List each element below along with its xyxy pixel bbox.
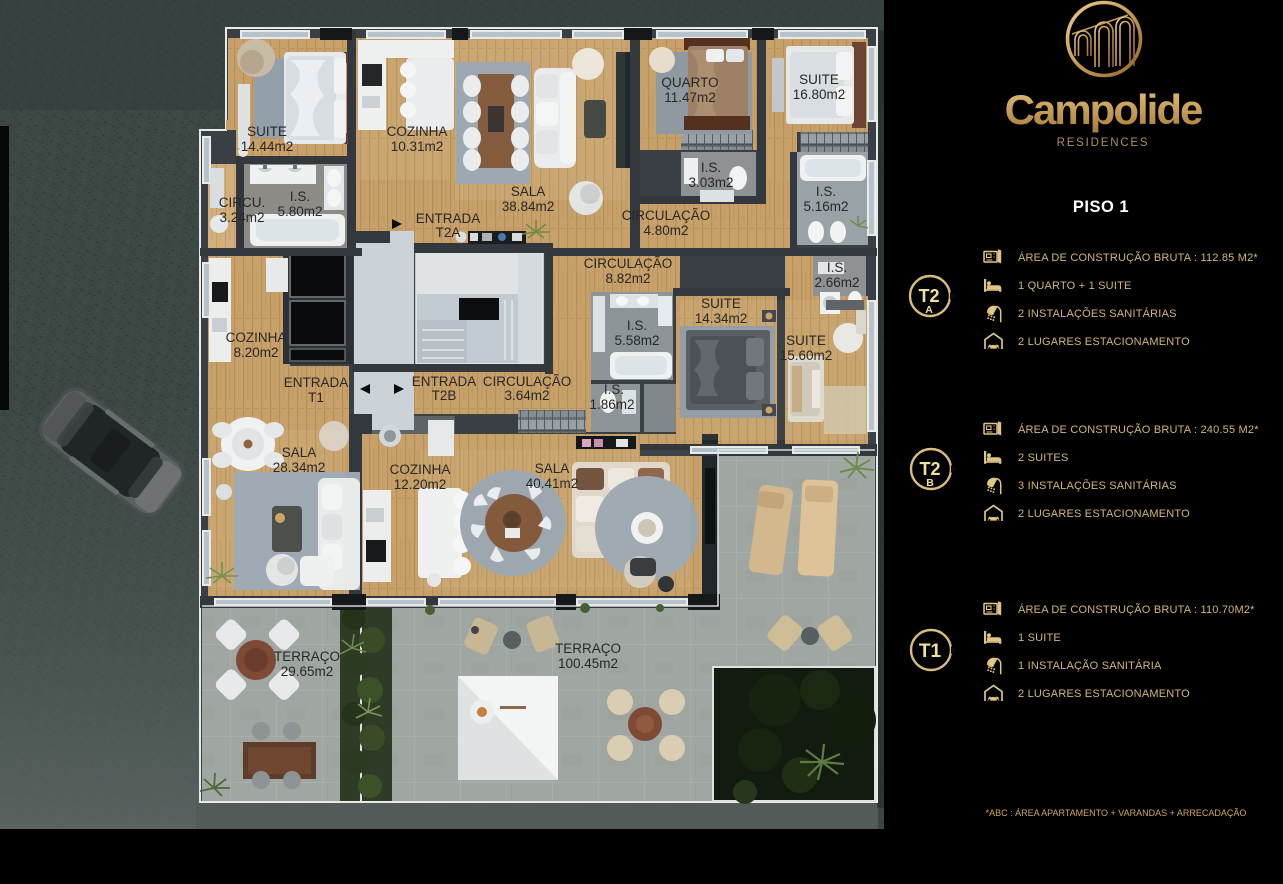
svg-text:8.20m2: 8.20m2 — [233, 345, 278, 360]
svg-text:T1: T1 — [308, 390, 324, 405]
svg-text:100.45m2: 100.45m2 — [558, 656, 618, 671]
svg-text:1 SUITE: 1 SUITE — [1018, 632, 1061, 644]
svg-text:T1: T1 — [919, 641, 942, 662]
svg-text:T2: T2 — [918, 286, 939, 306]
svg-text:ÁREA DE CONSTRUÇÃO BRUTA : 24: ÁREA DE CONSTRUÇÃO BRUTA : 240.55 M2* — [1018, 423, 1259, 436]
svg-text:CIRCU.: CIRCU. — [219, 195, 266, 210]
svg-text:TERRAÇO: TERRAÇO — [555, 641, 621, 656]
svg-text:11.47m2: 11.47m2 — [664, 90, 716, 105]
svg-text:2 LUGARES ESTACIONAMENTO: 2 LUGARES ESTACIONAMENTO — [1018, 508, 1190, 520]
svg-text:ENTRADA: ENTRADA — [416, 211, 481, 226]
svg-text:CIRCULAÇÃO: CIRCULAÇÃO — [483, 374, 572, 389]
svg-text:2.66m2: 2.66m2 — [814, 275, 859, 290]
svg-text:2 INSTALAÇÕES SANITÁRIAS: 2 INSTALAÇÕES SANITÁRIAS — [1018, 307, 1177, 320]
svg-text:2 LUGARES ESTACIONAMENTO: 2 LUGARES ESTACIONAMENTO — [1018, 336, 1190, 348]
svg-text:I.S.: I.S. — [827, 260, 847, 275]
svg-text:*ABC : ÁREA APARTAMENTO + VAR: *ABC : ÁREA APARTAMENTO + VARANDAS + ARR… — [986, 808, 1247, 818]
svg-text:CIRCULAÇÃO: CIRCULAÇÃO — [584, 256, 673, 271]
svg-text:12.20m2: 12.20m2 — [394, 477, 447, 492]
svg-text:3 INSTALAÇÕES SANITÁRIAS: 3 INSTALAÇÕES SANITÁRIAS — [1018, 479, 1177, 492]
svg-text:COZINHA: COZINHA — [390, 462, 451, 477]
svg-text:1 INSTALAÇÃO SANITÁRIA: 1 INSTALAÇÃO SANITÁRIA — [1018, 659, 1162, 672]
svg-text:ENTRADA: ENTRADA — [412, 374, 477, 389]
svg-text:3.24m2: 3.24m2 — [219, 210, 264, 225]
svg-text:QUARTO: QUARTO — [661, 75, 718, 90]
svg-text:40.41m2: 40.41m2 — [526, 476, 579, 491]
svg-text:28.34m2: 28.34m2 — [273, 460, 326, 475]
svg-text:14.34m2: 14.34m2 — [695, 311, 748, 326]
svg-text:TERRAÇO: TERRAÇO — [274, 649, 340, 664]
svg-text:SUITE: SUITE — [247, 124, 287, 139]
svg-text:1 QUARTO + 1 SUITE: 1 QUARTO + 1 SUITE — [1018, 280, 1132, 292]
svg-text:5.16m2: 5.16m2 — [803, 199, 848, 214]
svg-text:COZINHA: COZINHA — [226, 330, 287, 345]
svg-text:A: A — [925, 304, 933, 316]
svg-text:I.S.: I.S. — [627, 318, 647, 333]
svg-text:SALA: SALA — [535, 461, 570, 476]
svg-text:PISO 1: PISO 1 — [1073, 198, 1129, 216]
svg-text:2 SUITES: 2 SUITES — [1018, 452, 1069, 464]
svg-text:5.80m2: 5.80m2 — [277, 204, 322, 219]
svg-text:I.S.: I.S. — [290, 189, 310, 204]
svg-text:T2: T2 — [919, 459, 940, 479]
svg-text:4.80m2: 4.80m2 — [643, 223, 688, 238]
svg-text:I.S.: I.S. — [701, 160, 721, 175]
svg-text:15.60m2: 15.60m2 — [780, 348, 833, 363]
svg-text:5.58m2: 5.58m2 — [614, 333, 659, 348]
svg-text:10.31m2: 10.31m2 — [391, 139, 444, 154]
svg-text:2 LUGARES ESTACIONAMENTO: 2 LUGARES ESTACIONAMENTO — [1018, 688, 1190, 700]
svg-text:ÁREA DE CONSTRUÇÃO BRUTA : 11: ÁREA DE CONSTRUÇÃO BRUTA : 110.70M2* — [1018, 603, 1255, 616]
svg-text:29.65m2: 29.65m2 — [281, 664, 334, 679]
svg-text:3.03m2: 3.03m2 — [688, 175, 733, 190]
svg-text:SUITE: SUITE — [701, 296, 741, 311]
svg-text:SALA: SALA — [511, 184, 546, 199]
svg-text:ENTRADA: ENTRADA — [284, 375, 349, 390]
svg-text:SUITE: SUITE — [799, 72, 839, 87]
svg-text:1.86m2: 1.86m2 — [589, 397, 634, 412]
svg-text:T2A: T2A — [436, 225, 461, 240]
svg-text:I.S.: I.S. — [604, 382, 624, 397]
svg-text:14.44m2: 14.44m2 — [241, 139, 294, 154]
svg-text:COZINHA: COZINHA — [387, 124, 448, 139]
svg-text:T2B: T2B — [432, 388, 457, 403]
svg-text:SALA: SALA — [282, 445, 317, 460]
svg-text:Campolide: Campolide — [1005, 86, 1202, 133]
svg-text:RESIDENCES: RESIDENCES — [1057, 137, 1150, 149]
svg-text:SUITE: SUITE — [786, 333, 826, 348]
svg-text:ÁREA DE CONSTRUÇÃO BRUTA : 11: ÁREA DE CONSTRUÇÃO BRUTA : 112.85 M2* — [1018, 251, 1258, 264]
svg-text:3.64m2: 3.64m2 — [504, 388, 549, 403]
svg-text:16.80m2: 16.80m2 — [793, 87, 846, 102]
svg-text:8.82m2: 8.82m2 — [605, 271, 650, 286]
svg-text:B: B — [926, 477, 934, 489]
svg-text:CIRCULAÇÃO: CIRCULAÇÃO — [622, 208, 711, 223]
svg-text:38.84m2: 38.84m2 — [502, 199, 555, 214]
svg-text:I.S.: I.S. — [816, 184, 836, 199]
